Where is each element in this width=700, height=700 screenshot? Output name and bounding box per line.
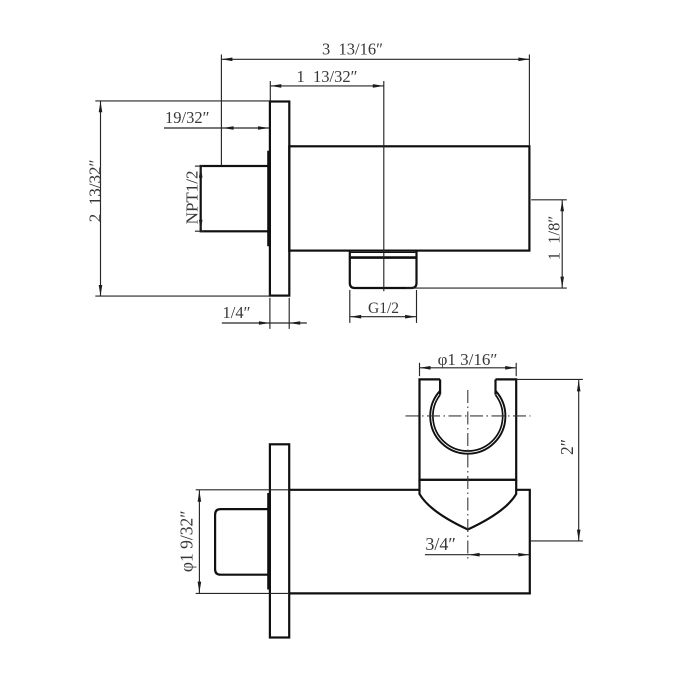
svg-text:2″: 2″ bbox=[557, 439, 577, 455]
svg-text:1/4″: 1/4″ bbox=[223, 303, 251, 322]
svg-text:3 13/16″: 3 13/16″ bbox=[322, 40, 383, 59]
svg-text:19/32″: 19/32″ bbox=[165, 108, 209, 127]
svg-text:3/4″: 3/4″ bbox=[425, 534, 456, 554]
svg-text:φ1 9/32″: φ1 9/32″ bbox=[177, 510, 197, 572]
svg-text:φ1 3/16″: φ1 3/16″ bbox=[438, 350, 498, 369]
svg-text:1 13/32″: 1 13/32″ bbox=[297, 67, 358, 86]
svg-text:NPT1/2: NPT1/2 bbox=[183, 170, 202, 224]
svg-text:G1/2: G1/2 bbox=[368, 300, 399, 317]
svg-text:2 13/32″: 2 13/32″ bbox=[85, 159, 104, 222]
svg-text:1 1/8″: 1 1/8″ bbox=[544, 216, 563, 260]
